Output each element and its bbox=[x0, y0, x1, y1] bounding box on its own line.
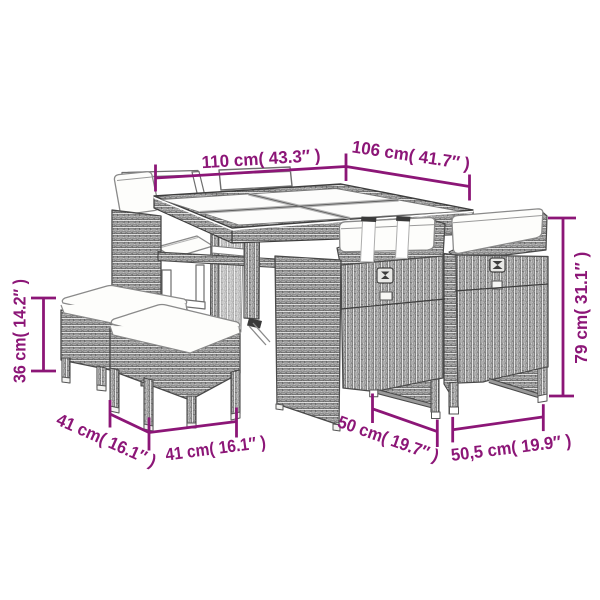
svg-text:50 cm( 19.7″ ): 50 cm( 19.7″ ) bbox=[335, 411, 442, 465]
svg-text:106 cm( 41.7″ ): 106 cm( 41.7″ ) bbox=[351, 136, 472, 173]
svg-text:50,5 cm( 19.9″ ): 50,5 cm( 19.9″ ) bbox=[450, 430, 573, 465]
svg-text:41 cm( 16.1″ ): 41 cm( 16.1″ ) bbox=[164, 432, 267, 465]
svg-text:79 cm( 31.1″ ): 79 cm( 31.1″ ) bbox=[571, 252, 591, 364]
svg-text:36 cm( 14.2″ ): 36 cm( 14.2″ ) bbox=[10, 279, 30, 383]
